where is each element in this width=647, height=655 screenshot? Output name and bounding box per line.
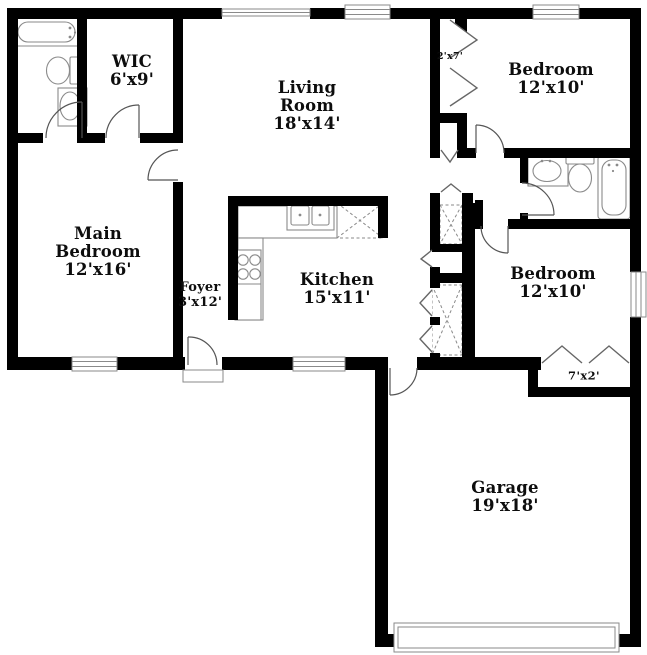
room-label-wic: WIC 6'x9' [110, 53, 154, 89]
kitchen-cubby-bifold [421, 250, 432, 267]
bedroom1-door [476, 125, 504, 153]
room-label-foyer: Foyer 3'x12' [178, 281, 222, 311]
closet1-bifold-doors [450, 20, 477, 106]
stove-icon [235, 250, 261, 320]
kitchen-window [293, 357, 345, 371]
living-room-picture-window [222, 9, 310, 16]
room-label-bedroom-2: Bedroom 12'x10' [510, 265, 596, 301]
room-dimensions: 18'x14' [268, 115, 346, 133]
hall-bath-sink-icon [528, 156, 568, 186]
room-dimensions: 2'x7' [437, 52, 463, 62]
room-dimensions: 12'x16' [48, 261, 148, 279]
bedroom2-window [631, 272, 646, 317]
living-room-window [345, 5, 390, 19]
floor-plan: WIC 6'x9' Living Room 18'x14' Bedroom 12… [0, 0, 647, 655]
closet2-dimensions-label: 7'x2' [568, 370, 600, 383]
hall-closet-bifold [441, 184, 461, 192]
wic-door [106, 105, 139, 138]
hall-bathtub-icon [598, 156, 630, 219]
room-name: Bedroom [508, 61, 594, 79]
room-name: Garage [471, 479, 538, 497]
garage-entry-door [390, 368, 417, 395]
pantry-shelves [337, 203, 383, 238]
hall-cubby-bifold [441, 150, 458, 162]
room-label-main-bedroom: Main Bedroom 12'x16' [48, 225, 148, 279]
garage-door [394, 623, 619, 652]
room-dimensions: 19'x18' [471, 497, 538, 515]
room-dimensions: 12'x10' [508, 79, 594, 97]
hall-closet-shelves [440, 205, 462, 244]
room-name: Foyer [178, 281, 222, 296]
hall-bathroom-door [522, 183, 554, 215]
main-bedroom-door [148, 150, 178, 180]
master-toilet-icon [47, 57, 80, 84]
hall-bath-toilet-icon [566, 156, 594, 192]
room-dimensions: 15'x11' [300, 289, 374, 307]
bedroom1-window [533, 5, 579, 19]
main-bedroom-window [72, 357, 117, 371]
room-label-garage: Garage 19'x18' [471, 479, 538, 515]
room-label-living-room: Living Room 18'x14' [268, 79, 346, 133]
master-bathtub-icon [13, 18, 80, 46]
bedroom2-door [481, 226, 508, 253]
room-name: Living Room [268, 79, 346, 115]
room-label-kitchen: Kitchen 15'x11' [300, 271, 374, 307]
room-name: Kitchen [300, 271, 374, 289]
room-name: Bedroom [510, 265, 596, 283]
room-dimensions: 7'x2' [568, 370, 600, 383]
room-dimensions: 3'x12' [178, 296, 222, 311]
room-name: WIC [110, 53, 154, 71]
room-label-bedroom-1: Bedroom 12'x10' [508, 61, 594, 97]
room-dimensions: 6'x9' [110, 71, 154, 89]
closet2-bifold-doors [542, 346, 629, 363]
front-stoop [183, 370, 223, 382]
front-door [188, 337, 217, 365]
room-name: Main Bedroom [48, 225, 148, 261]
room-dimensions: 12'x10' [510, 283, 596, 301]
closet1-dimensions-label: 2'x7' [437, 52, 463, 62]
